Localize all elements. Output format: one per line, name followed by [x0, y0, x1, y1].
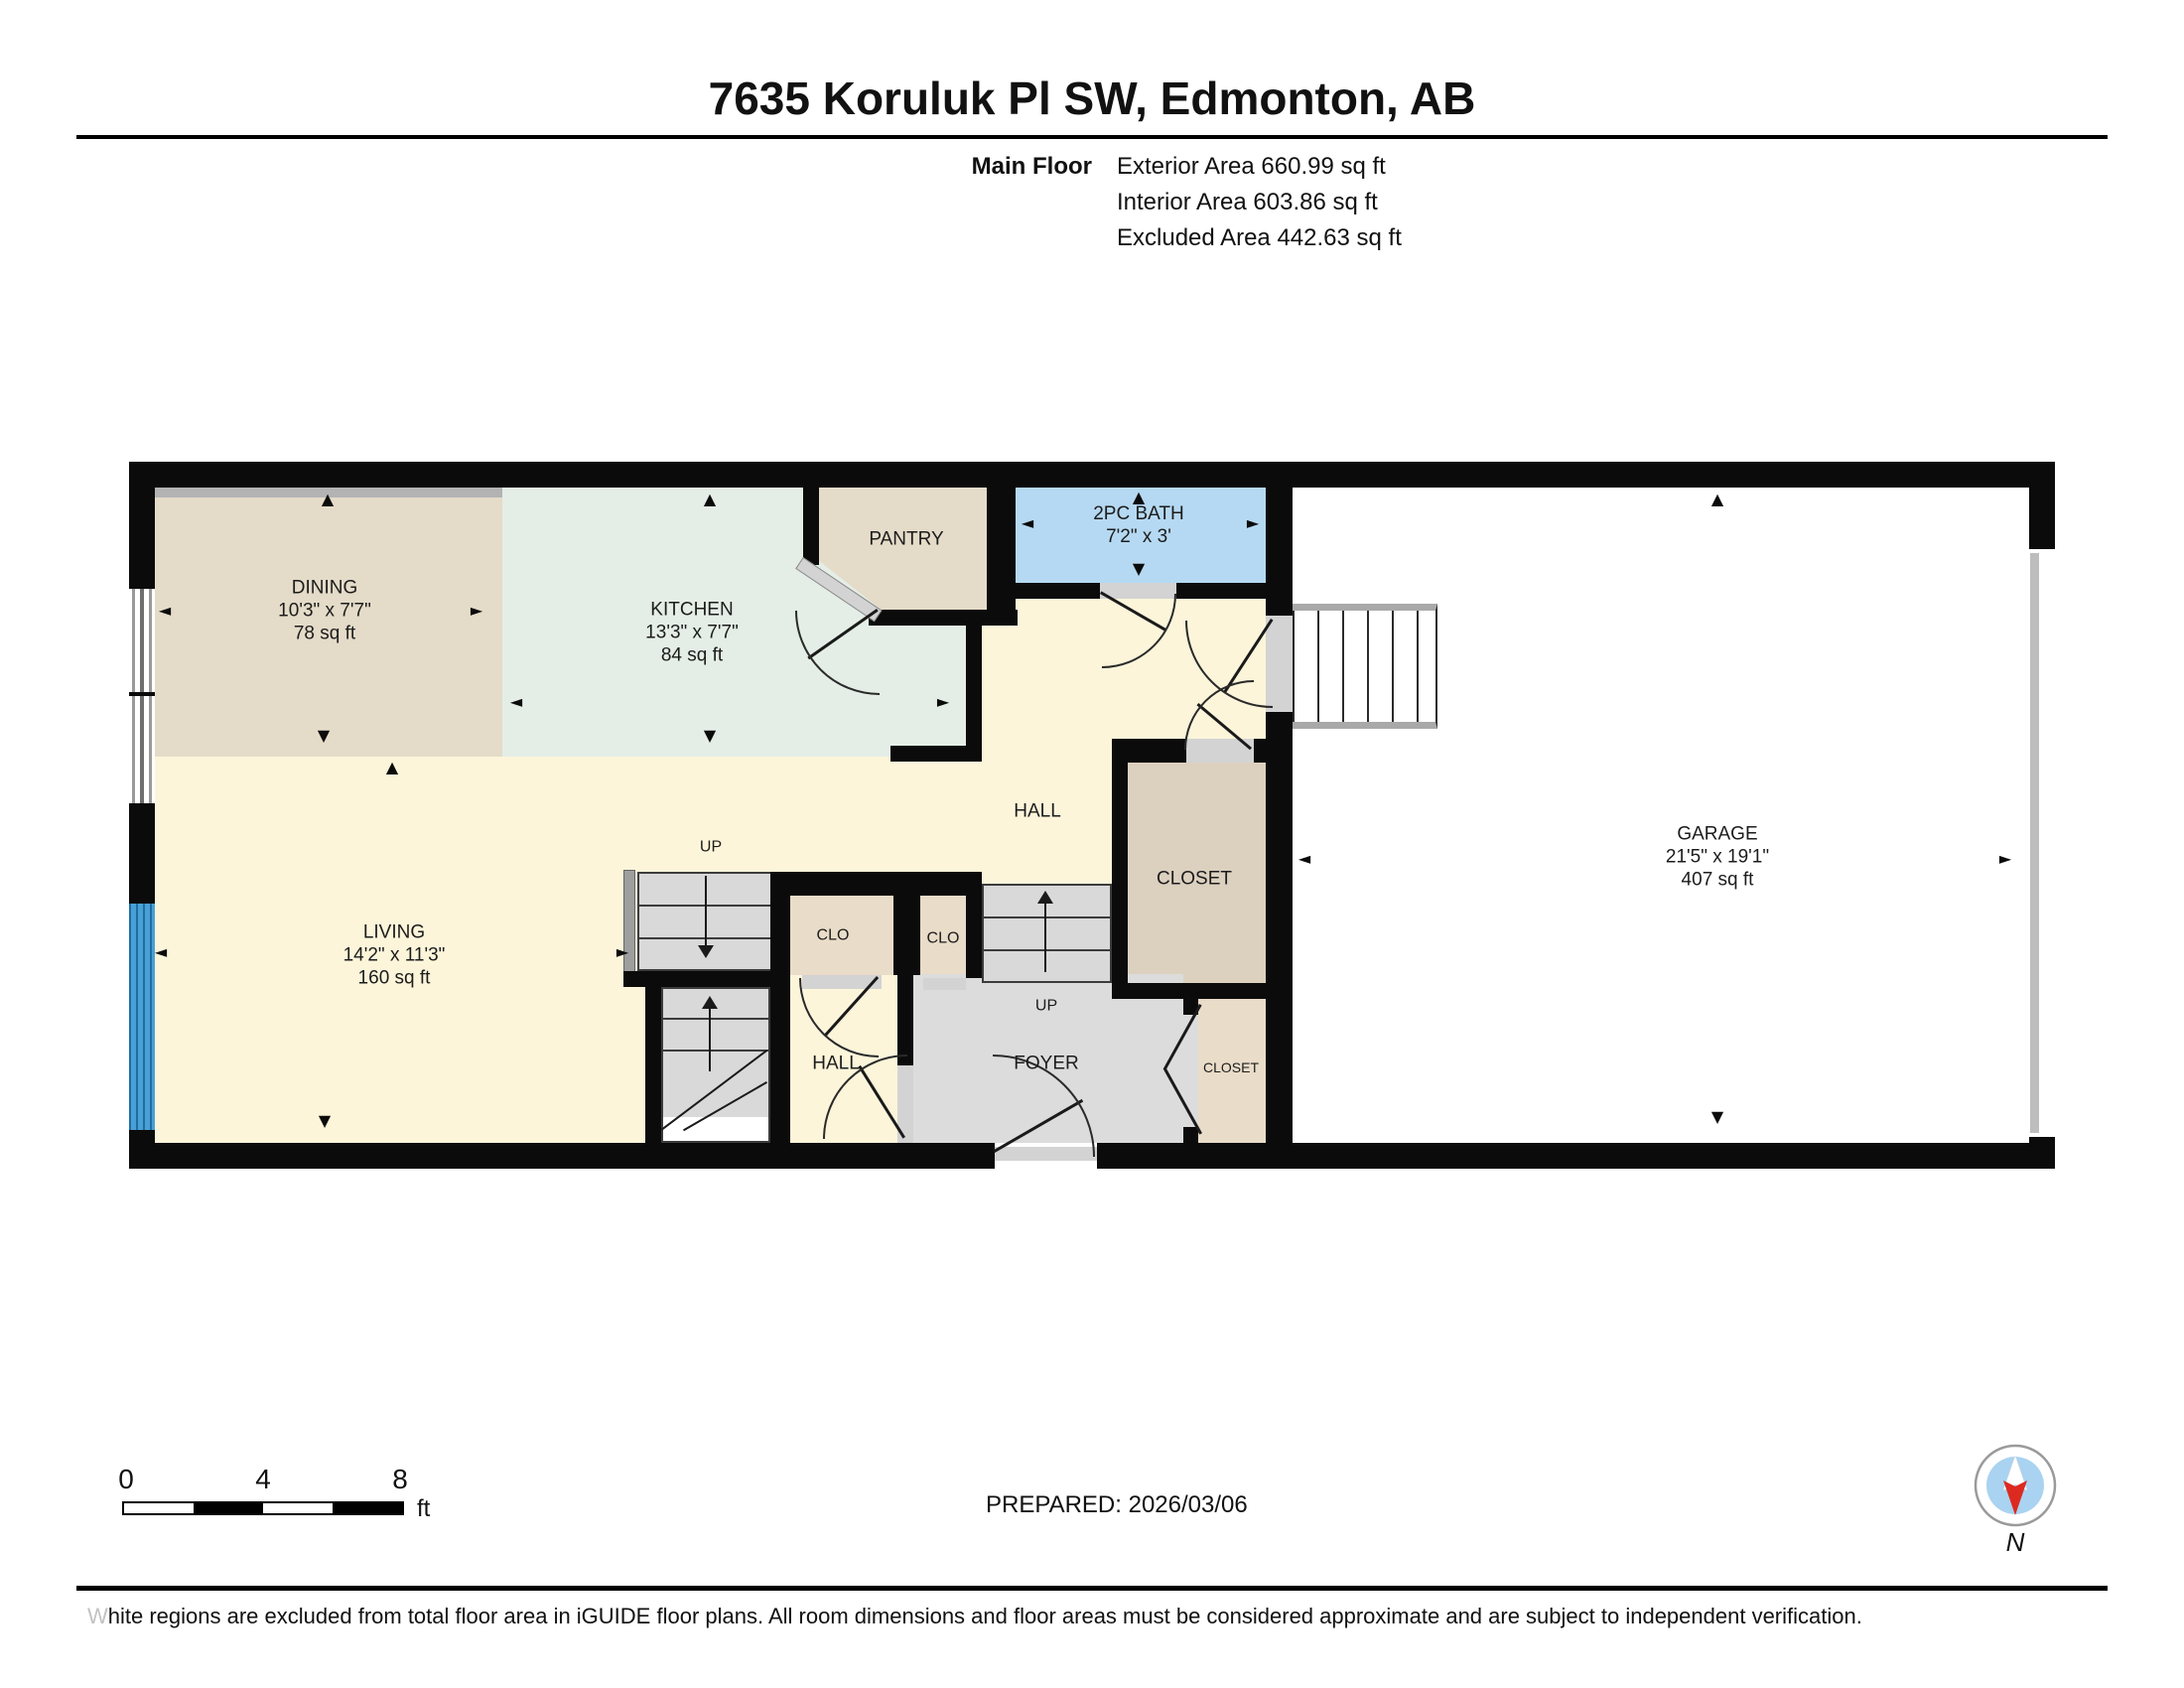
scale-tick-4: 4 — [255, 1464, 271, 1495]
stair-arrow-line — [709, 1006, 711, 1071]
room-area: 84 sq ft — [645, 644, 739, 667]
door-sill — [923, 978, 966, 990]
room-name: HALL — [812, 1053, 860, 1075]
stair-arrow-up-icon — [1037, 891, 1053, 904]
wall — [1266, 488, 1293, 616]
wall — [893, 896, 920, 975]
room-label-pantry: PANTRY — [869, 528, 943, 551]
room-label-foyer: FOYER — [1014, 1053, 1078, 1075]
wall — [1112, 983, 1266, 999]
wall — [1254, 739, 1266, 763]
excluded-area: Excluded Area 442.63 sq ft — [1117, 220, 1402, 256]
stair-tread — [663, 1050, 768, 1052]
wall — [129, 462, 2055, 488]
room-name: CLO — [927, 929, 960, 948]
wall — [1112, 755, 1128, 983]
dim-arrow-left-icon: ◄ — [155, 944, 167, 960]
stair-arrow-up-icon — [702, 996, 718, 1009]
dim-arrow-up-icon: ▲ — [1711, 492, 1723, 507]
dim-arrow-right-icon: ► — [471, 603, 482, 619]
stair-arrow-down-icon — [698, 945, 714, 958]
dim-arrow-down-icon: ▼ — [1711, 1109, 1723, 1125]
room-label-clo1: CLO — [817, 926, 850, 945]
garage-door — [2030, 553, 2039, 1133]
stairs-label: UP — [700, 838, 722, 857]
dim-arrow-up-icon: ▲ — [704, 492, 716, 507]
door-arc — [795, 611, 880, 695]
disclaimer: White regions are excluded from total fl… — [87, 1604, 1862, 1629]
room-label-closet-lower: CLOSET — [1203, 1059, 1259, 1075]
wall — [1176, 583, 1266, 599]
wall — [1016, 583, 1100, 599]
floor-plan: ▲ ▼ ◄ ► ▲ ▼ ◄ ► ▲ ▼ ◄ ► ▲ ▼ ◄ ► ▲ ▼ ◄ ► … — [129, 462, 2055, 1169]
room-area: 407 sq ft — [1666, 869, 1769, 892]
room-name: GARAGE — [1666, 823, 1769, 846]
dim-arrow-down-icon: ▼ — [704, 728, 716, 744]
room-dims: 13'3" x 7'7" — [645, 622, 739, 644]
label-up-foyer: UP — [1035, 997, 1057, 1016]
stair-landing — [663, 1117, 768, 1141]
room-area: 78 sq ft — [278, 623, 371, 645]
room-name: PANTRY — [869, 528, 943, 551]
room-label-bath: 2PC BATH 7'2" x 3' — [1093, 502, 1184, 548]
dim-arrow-left-icon: ◄ — [159, 603, 171, 619]
room-dims: 7'2" x 3' — [1093, 525, 1184, 548]
room-label-hall-lower: HALL — [812, 1053, 860, 1075]
wall — [966, 626, 982, 762]
stairs-label: UP — [1035, 997, 1057, 1016]
exterior-stairs — [1293, 604, 1437, 729]
room-garage — [1293, 488, 2029, 1143]
dim-arrow-down-icon: ▼ — [318, 728, 330, 744]
room-label-closet-upper: CLOSET — [1157, 868, 1232, 891]
wall — [890, 746, 982, 762]
compass-north-label: N — [2006, 1527, 2025, 1558]
door-arc — [1184, 680, 1254, 750]
wall — [987, 488, 1016, 626]
dim-arrow-right-icon: ► — [616, 944, 628, 960]
page-title: 7635 Koruluk Pl SW, Edmonton, AB — [0, 71, 2184, 125]
interior-area: Interior Area 603.86 sq ft — [1117, 185, 1402, 220]
scale-tick-8: 8 — [392, 1464, 408, 1495]
wall — [623, 971, 790, 987]
exterior-area: Exterior Area 660.99 sq ft — [1117, 149, 1402, 185]
stair-arrow-line — [705, 876, 707, 947]
room-name: CLO — [817, 926, 850, 945]
floor-plan-page: 7635 Koruluk Pl SW, Edmonton, AB Main Fl… — [0, 0, 2184, 1688]
room-dims: 21'5" x 19'1" — [1666, 846, 1769, 869]
room-name: HALL — [1014, 800, 1061, 823]
room-name: CLOSET — [1203, 1059, 1259, 1075]
dim-arrow-left-icon: ◄ — [510, 694, 522, 710]
wall — [897, 974, 913, 1065]
room-label-clo2: CLO — [927, 929, 960, 948]
wall — [645, 987, 661, 1143]
room-label-hall-upper: HALL — [1014, 800, 1061, 823]
room-dims: 10'3" x 7'7" — [278, 600, 371, 623]
door-arc — [1102, 594, 1176, 668]
dim-arrow-up-icon: ▲ — [386, 760, 398, 775]
stair-tread — [663, 1018, 768, 1020]
wall — [803, 488, 819, 565]
room-name: DINING — [278, 577, 371, 600]
patio-window — [129, 904, 155, 1130]
room-label-living: LIVING 14'2" x 11'3" 160 sq ft — [343, 921, 446, 990]
dim-arrow-up-icon: ▲ — [322, 492, 334, 507]
scale-tick-0: 0 — [118, 1464, 134, 1495]
stair-arrow-line — [1044, 901, 1046, 972]
disclaimer-text: hite regions are excluded from total flo… — [108, 1604, 1862, 1628]
window — [129, 696, 155, 803]
room-label-garage: GARAGE 21'5" x 19'1" 407 sq ft — [1666, 823, 1769, 892]
floor-label: Main Floor — [824, 149, 1092, 185]
label-up-main: UP — [700, 838, 722, 857]
dim-arrow-left-icon: ◄ — [1298, 851, 1310, 867]
wall — [966, 896, 982, 978]
compass-icon — [1974, 1444, 2057, 1527]
wall — [770, 872, 790, 1143]
window — [129, 589, 155, 692]
room-name: 2PC BATH — [1093, 502, 1184, 525]
scale-bar — [122, 1501, 404, 1515]
footer-divider — [76, 1586, 2108, 1591]
room-label-kitchen: KITCHEN 13'3" x 7'7" 84 sq ft — [645, 599, 739, 667]
wall — [1266, 712, 1293, 1143]
room-dims: 14'2" x 11'3" — [343, 944, 446, 967]
dim-arrow-down-icon: ▼ — [319, 1113, 331, 1129]
wall — [774, 872, 982, 896]
room-name: FOYER — [1014, 1053, 1078, 1075]
room-area: 160 sq ft — [343, 967, 446, 990]
room-name: LIVING — [343, 921, 446, 944]
prepared-date: PREPARED: 2026/03/06 — [986, 1491, 1248, 1519]
dim-arrow-right-icon: ► — [1999, 851, 2011, 867]
room-name: KITCHEN — [645, 599, 739, 622]
floor-areas: Exterior Area 660.99 sq ft Interior Area… — [1117, 149, 1402, 256]
dim-arrow-down-icon: ▼ — [1133, 561, 1145, 577]
dim-arrow-left-icon: ◄ — [1022, 515, 1033, 531]
disclaimer-lead: W — [87, 1604, 108, 1628]
door-arc — [799, 978, 879, 1057]
dim-arrow-right-icon: ► — [1247, 515, 1259, 531]
dim-arrow-right-icon: ► — [937, 694, 949, 710]
header-divider — [76, 135, 2108, 139]
room-label-dining: DINING 10'3" x 7'7" 78 sq ft — [278, 577, 371, 645]
room-name: CLOSET — [1157, 868, 1232, 891]
scale-unit: ft — [417, 1495, 430, 1523]
